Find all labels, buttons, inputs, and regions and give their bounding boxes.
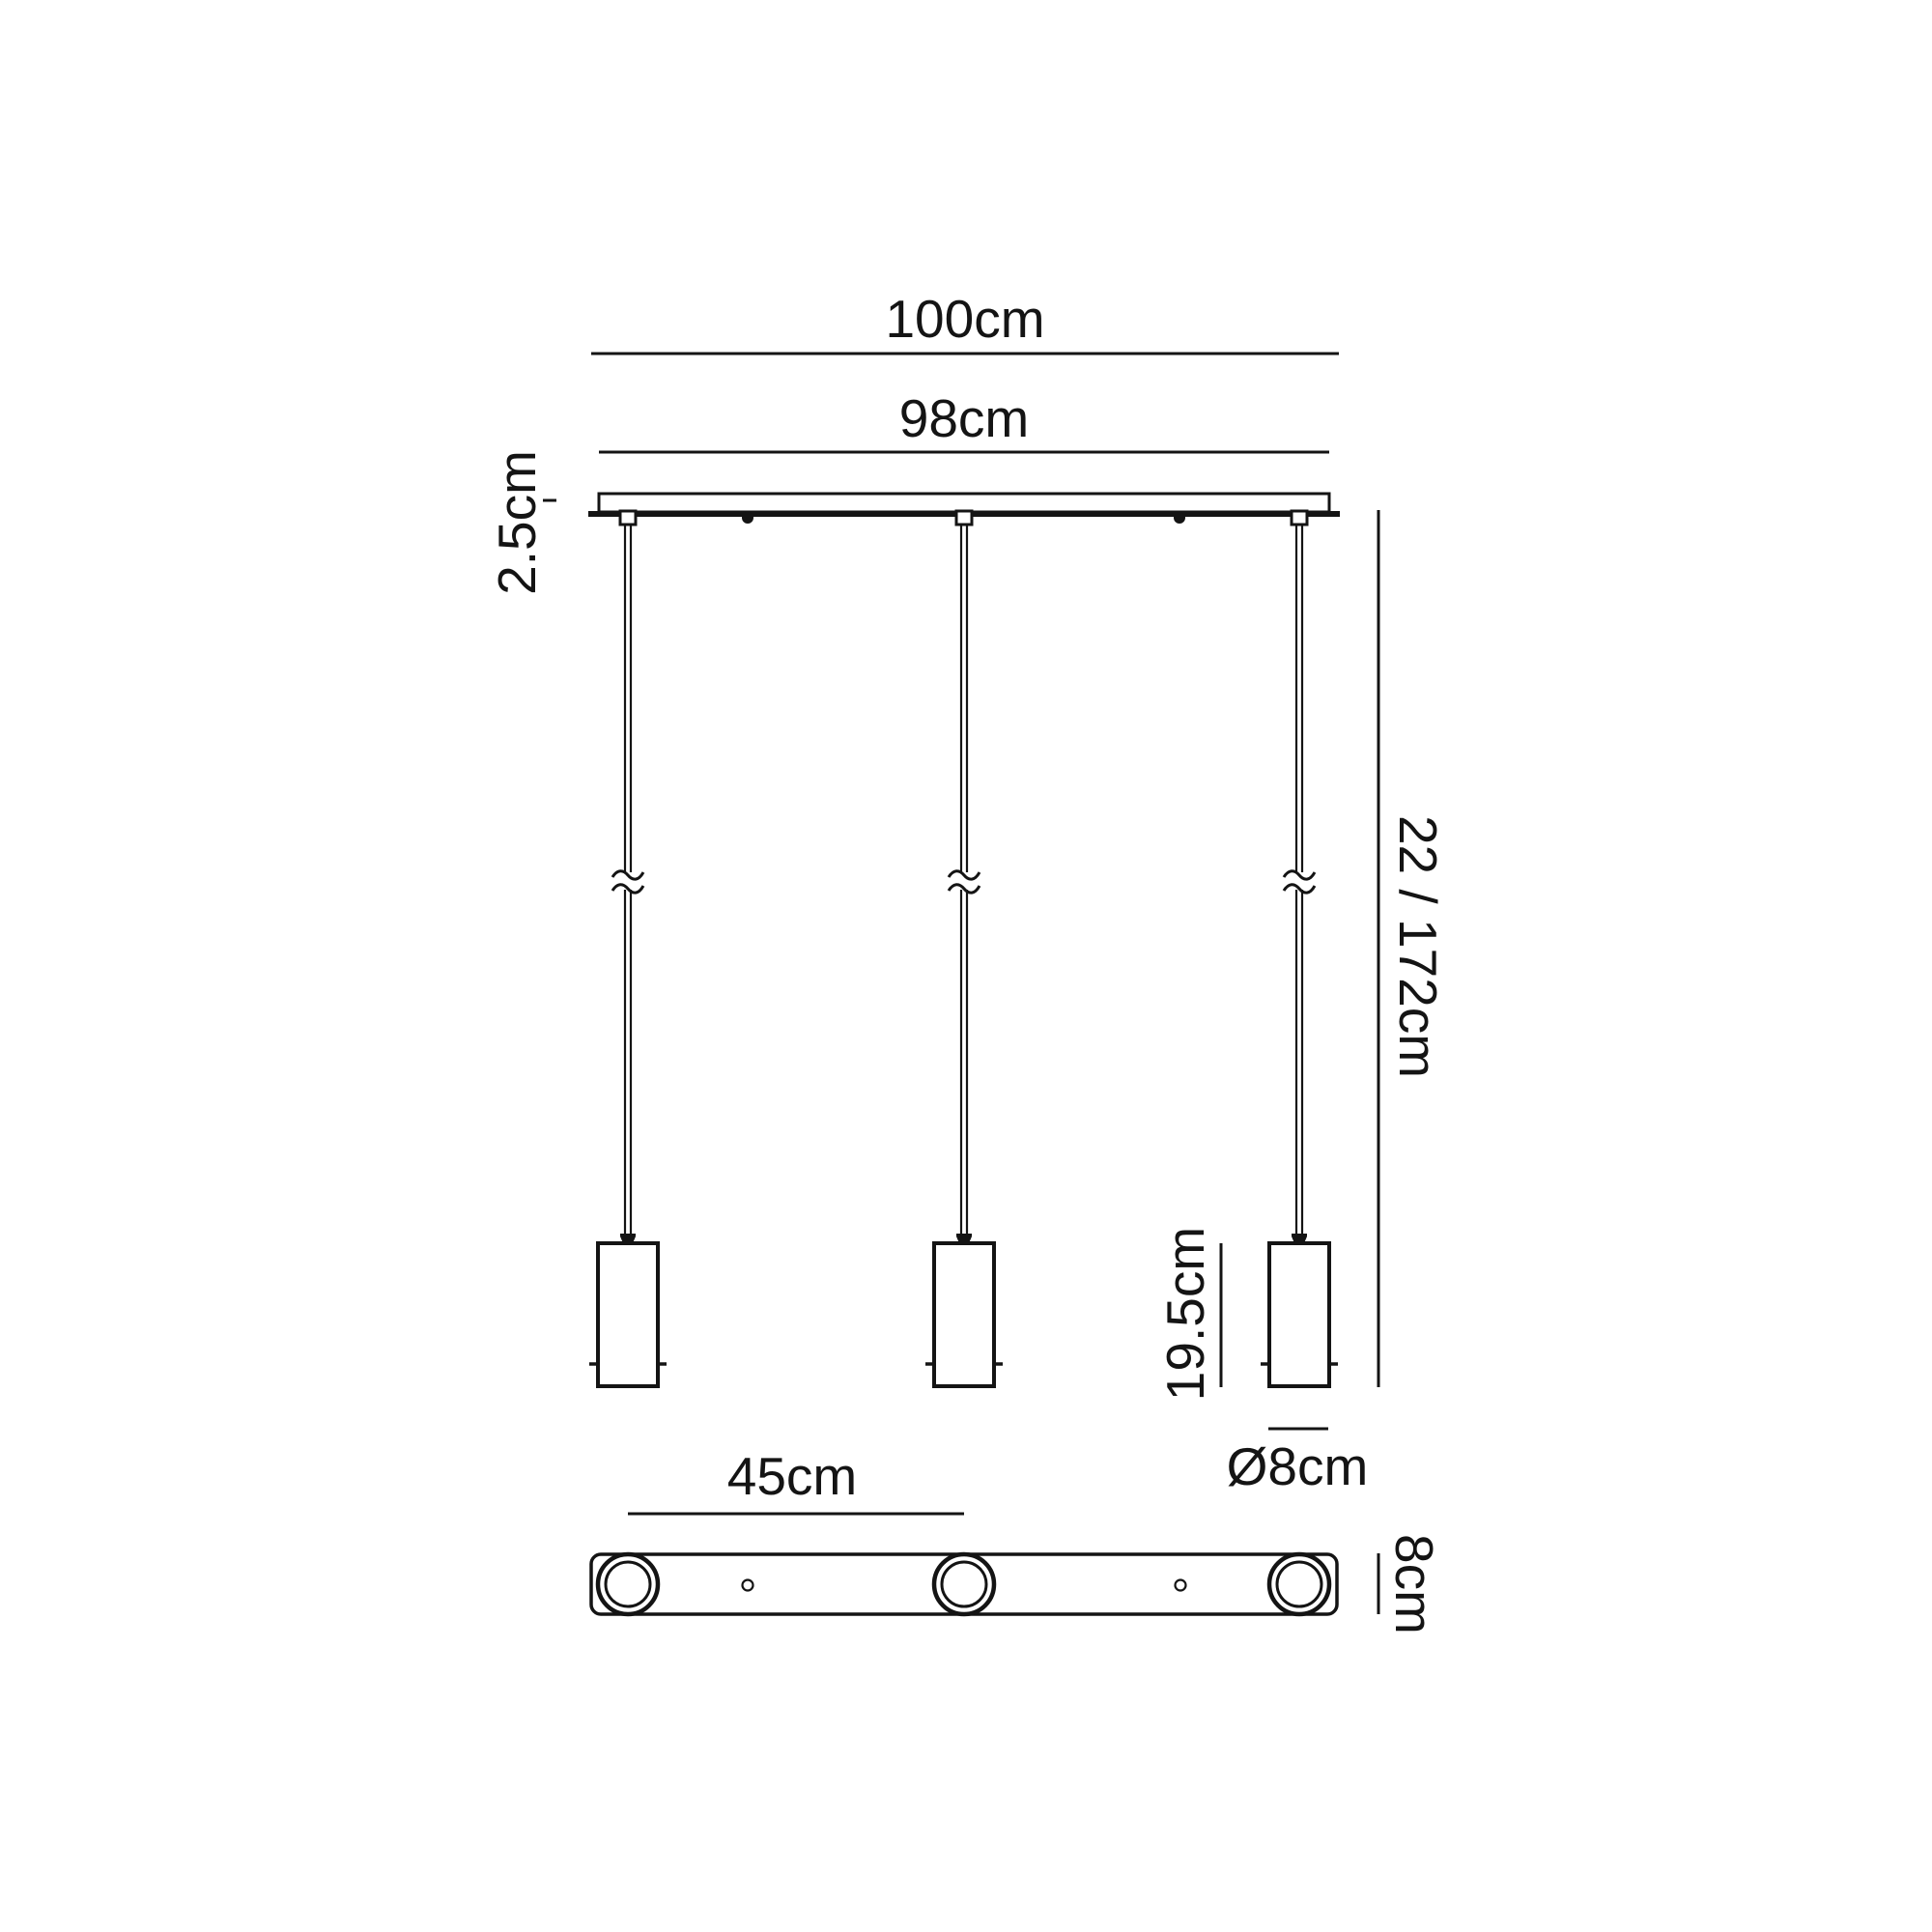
shade-diameter-label: Ø8cm bbox=[1227, 1436, 1369, 1496]
suspension-3 bbox=[1261, 511, 1338, 1386]
screw-nub-left bbox=[742, 512, 753, 524]
pendant-shade-1 bbox=[598, 1243, 658, 1386]
canopy-bar-front bbox=[599, 494, 1329, 512]
fixing-hole-1 bbox=[743, 1580, 753, 1591]
page: { "figure": { "kind": "pendant-luminaire… bbox=[0, 0, 1932, 1932]
cable-gripper-1 bbox=[620, 511, 636, 525]
suspension-1 bbox=[589, 511, 667, 1386]
cable-gripper-2 bbox=[956, 511, 972, 525]
cable-break-icon-3 bbox=[1284, 871, 1315, 893]
shade-spacing-label: 45cm bbox=[727, 1446, 858, 1506]
screw-nub-right bbox=[1174, 512, 1185, 524]
drop-range-label: 22 / 172cm bbox=[1388, 815, 1448, 1078]
cable-gripper-3 bbox=[1292, 511, 1307, 525]
canopy-width-label: 98cm bbox=[899, 388, 1030, 448]
cable-break-icon-2 bbox=[949, 871, 980, 893]
canopy-plan-view bbox=[591, 1554, 1337, 1614]
suspension-2 bbox=[925, 511, 1003, 1386]
canopy-depth-label: 8cm bbox=[1384, 1534, 1444, 1634]
canopy-height-label: 2.5cm bbox=[487, 450, 547, 595]
overall-width-label: 100cm bbox=[885, 289, 1044, 349]
dimension-diagram: 100cm 98cm 2.5cm bbox=[0, 0, 1932, 1932]
pendant-shade-2 bbox=[934, 1243, 994, 1386]
shade-height-label: 19.5cm bbox=[1155, 1227, 1215, 1401]
pendant-shade-3 bbox=[1269, 1243, 1329, 1386]
cable-break-icon-1 bbox=[612, 871, 643, 893]
fixing-hole-2 bbox=[1176, 1580, 1186, 1591]
